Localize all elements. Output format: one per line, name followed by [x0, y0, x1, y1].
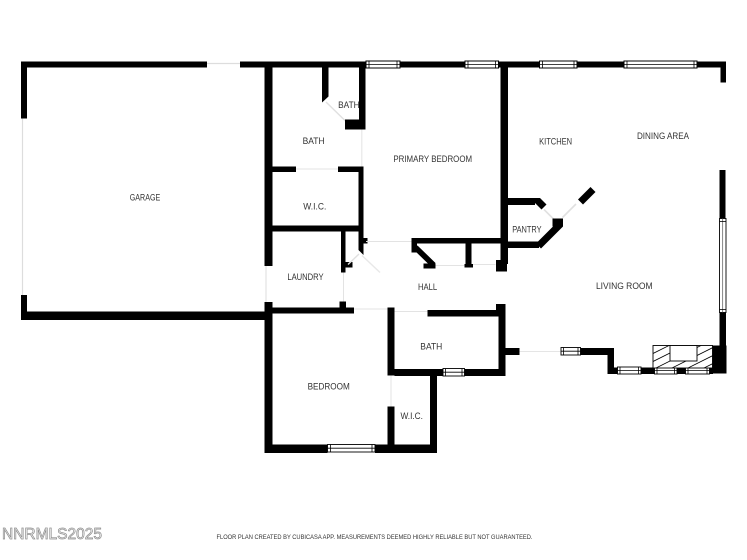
- svg-text:BATH: BATH: [303, 136, 325, 146]
- svg-text:W.I.C.: W.I.C.: [400, 411, 423, 421]
- svg-text:KITCHEN: KITCHEN: [539, 137, 572, 147]
- svg-text:LIVING ROOM: LIVING ROOM: [596, 281, 653, 291]
- svg-text:GARAGE: GARAGE: [130, 192, 161, 202]
- svg-text:FLOOR PLAN CREATED BY CUBICASA: FLOOR PLAN CREATED BY CUBICASA APP. MEAS…: [217, 535, 533, 541]
- svg-text:PRIMARY BEDROOM: PRIMARY BEDROOM: [393, 154, 472, 164]
- svg-text:LAUNDRY: LAUNDRY: [287, 272, 323, 282]
- svg-text:DINING AREA: DINING AREA: [637, 131, 689, 141]
- svg-text:BEDROOM: BEDROOM: [308, 382, 350, 392]
- svg-text:NNRMLS2025: NNRMLS2025: [2, 526, 102, 543]
- svg-text:BATH: BATH: [420, 342, 442, 352]
- svg-text:PANTRY: PANTRY: [512, 224, 541, 234]
- svg-text:BATH: BATH: [338, 100, 360, 110]
- svg-text:W.I.C.: W.I.C.: [303, 201, 326, 211]
- svg-text:HALL: HALL: [418, 282, 437, 292]
